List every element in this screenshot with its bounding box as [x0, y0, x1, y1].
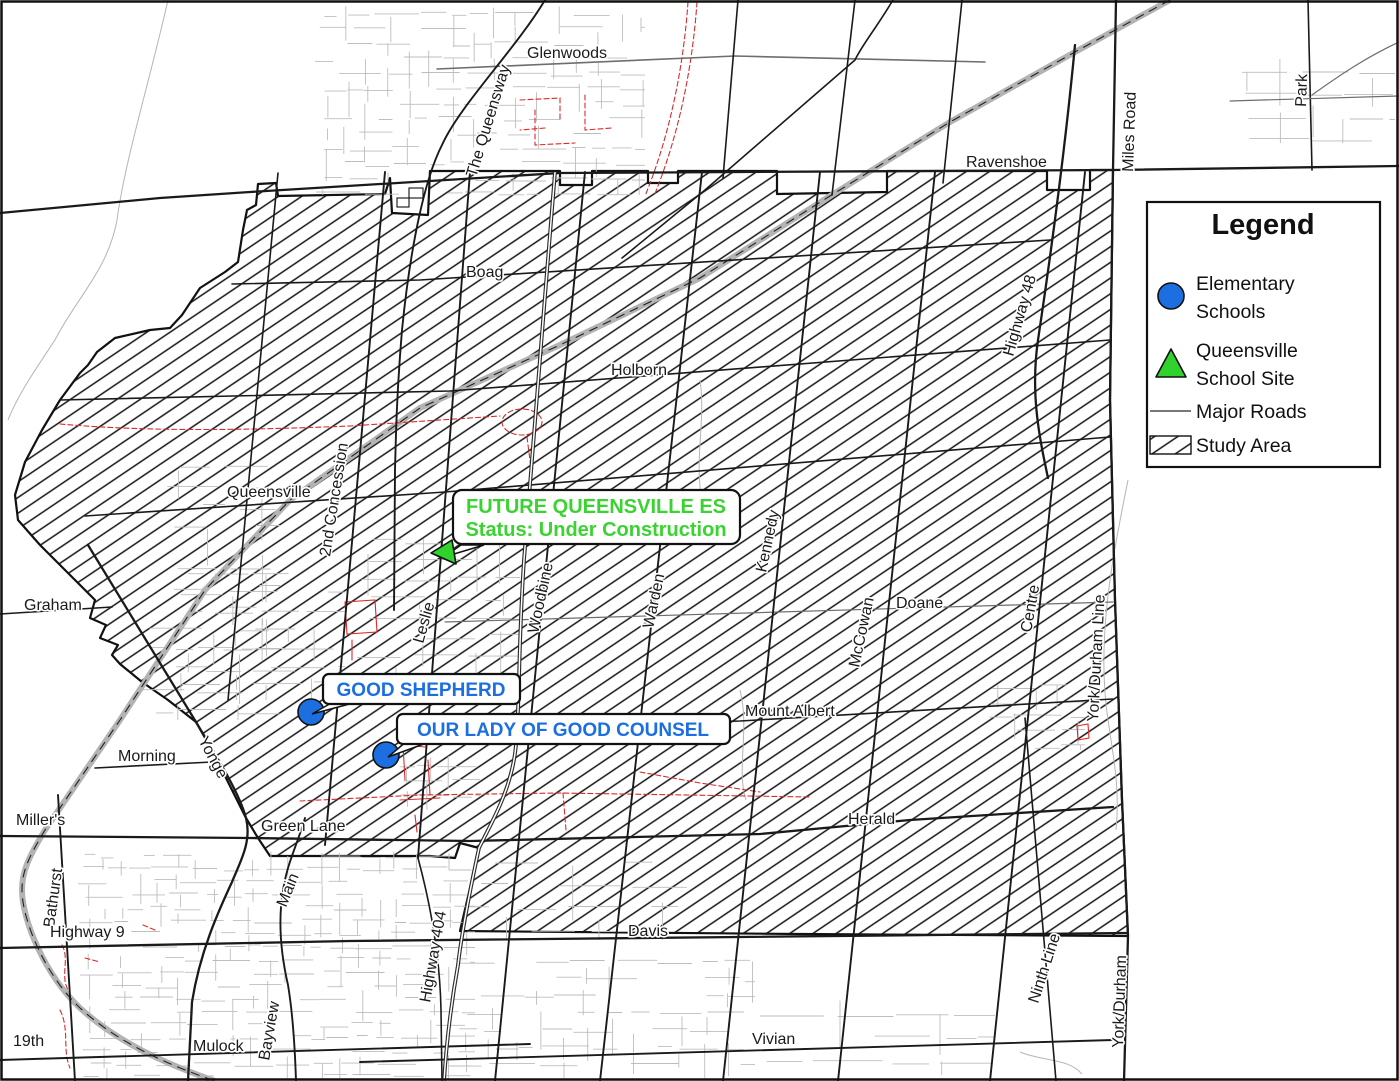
road-label-ravenshoe: Ravenshoe: [966, 154, 1047, 171]
map-screenshot: FUTURE QUEENSVILLE ES Status: Under Cons…: [0, 0, 1399, 1081]
road-label-mulock: Mulock: [193, 1038, 245, 1055]
legend-elementary-line1: Elementary: [1196, 273, 1295, 295]
legend-major-roads-label: Major Roads: [1196, 401, 1307, 423]
road-label-19th: 19th: [13, 1033, 44, 1050]
road-label-highway-9: Highway 9: [50, 924, 125, 941]
legend-title: Legend: [1211, 209, 1314, 241]
callout-future-line2: Status: Under Construction: [465, 519, 726, 541]
road-label-mount-albert: Mount Albert: [745, 703, 835, 720]
legend-study-area-label: Study Area: [1196, 435, 1292, 457]
road-label-queensville: Queensville: [227, 484, 311, 501]
callout-future-line1: FUTURE QUEENSVILLE ES: [466, 496, 726, 518]
legend: Legend Elementary Schools Queensville Sc…: [1147, 202, 1380, 467]
road-label-york-durham: York/Durham: [1110, 955, 1130, 1048]
legend-study-area-icon: [1150, 436, 1191, 454]
road-label-park: Park: [1293, 73, 1311, 107]
map-canvas: FUTURE QUEENSVILLE ES Status: Under Cons…: [0, 0, 1399, 1081]
road-label-doane: Doane: [896, 595, 943, 612]
callout-our-lady-label: OUR LADY OF GOOD COUNSEL: [417, 720, 709, 741]
road-label-davis: Davis: [628, 923, 668, 940]
road-label-graham: Graham: [24, 597, 82, 614]
road-label-green-lane: Green Lane: [261, 818, 346, 835]
road-label-glenwoods: Glenwoods: [527, 45, 607, 62]
road-label-vivian: Vivian: [752, 1031, 795, 1048]
callout-good-shepherd-label: GOOD SHEPHERD: [337, 680, 506, 701]
road-label-miles-road: Miles Road: [1120, 92, 1140, 173]
legend-elementary-school-icon: [1158, 283, 1184, 309]
road-label-millers: Miller's: [16, 812, 65, 829]
road-label-morning: Morning: [118, 748, 176, 765]
legend-site-line2: School Site: [1196, 368, 1295, 390]
road-label-boag: Boag: [466, 264, 503, 281]
legend-box: [1147, 202, 1380, 467]
legend-site-line1: Queensville: [1196, 340, 1298, 362]
road-label-holborn: Holborn: [611, 362, 667, 379]
road-label-herald: Herald: [848, 811, 895, 828]
legend-elementary-line2: Schools: [1196, 301, 1266, 323]
